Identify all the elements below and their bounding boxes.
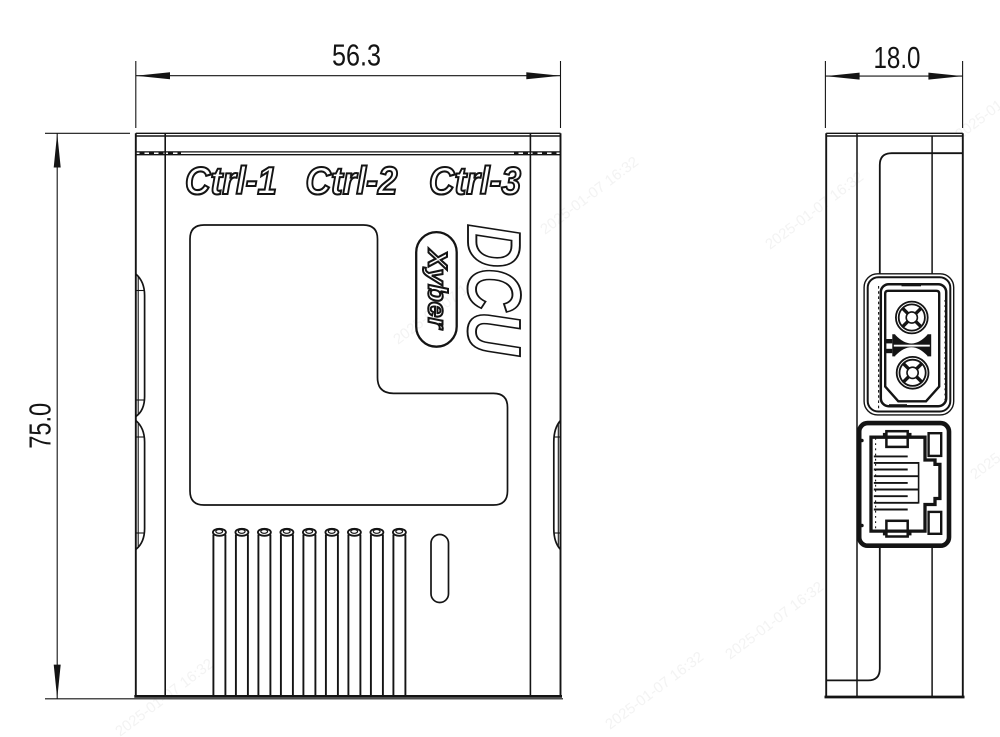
- svg-text:75.0: 75.0: [24, 403, 58, 449]
- svg-text:56.3: 56.3: [332, 39, 381, 73]
- svg-text:18.0: 18.0: [874, 41, 921, 75]
- svg-text:Ctrl-2: Ctrl-2: [306, 160, 398, 203]
- svg-text:DCU: DCU: [452, 224, 536, 356]
- svg-text:Xyber: Xyber: [423, 247, 453, 330]
- svg-text:Ctrl-1: Ctrl-1: [185, 160, 277, 203]
- svg-text:Ctrl-3: Ctrl-3: [429, 160, 521, 203]
